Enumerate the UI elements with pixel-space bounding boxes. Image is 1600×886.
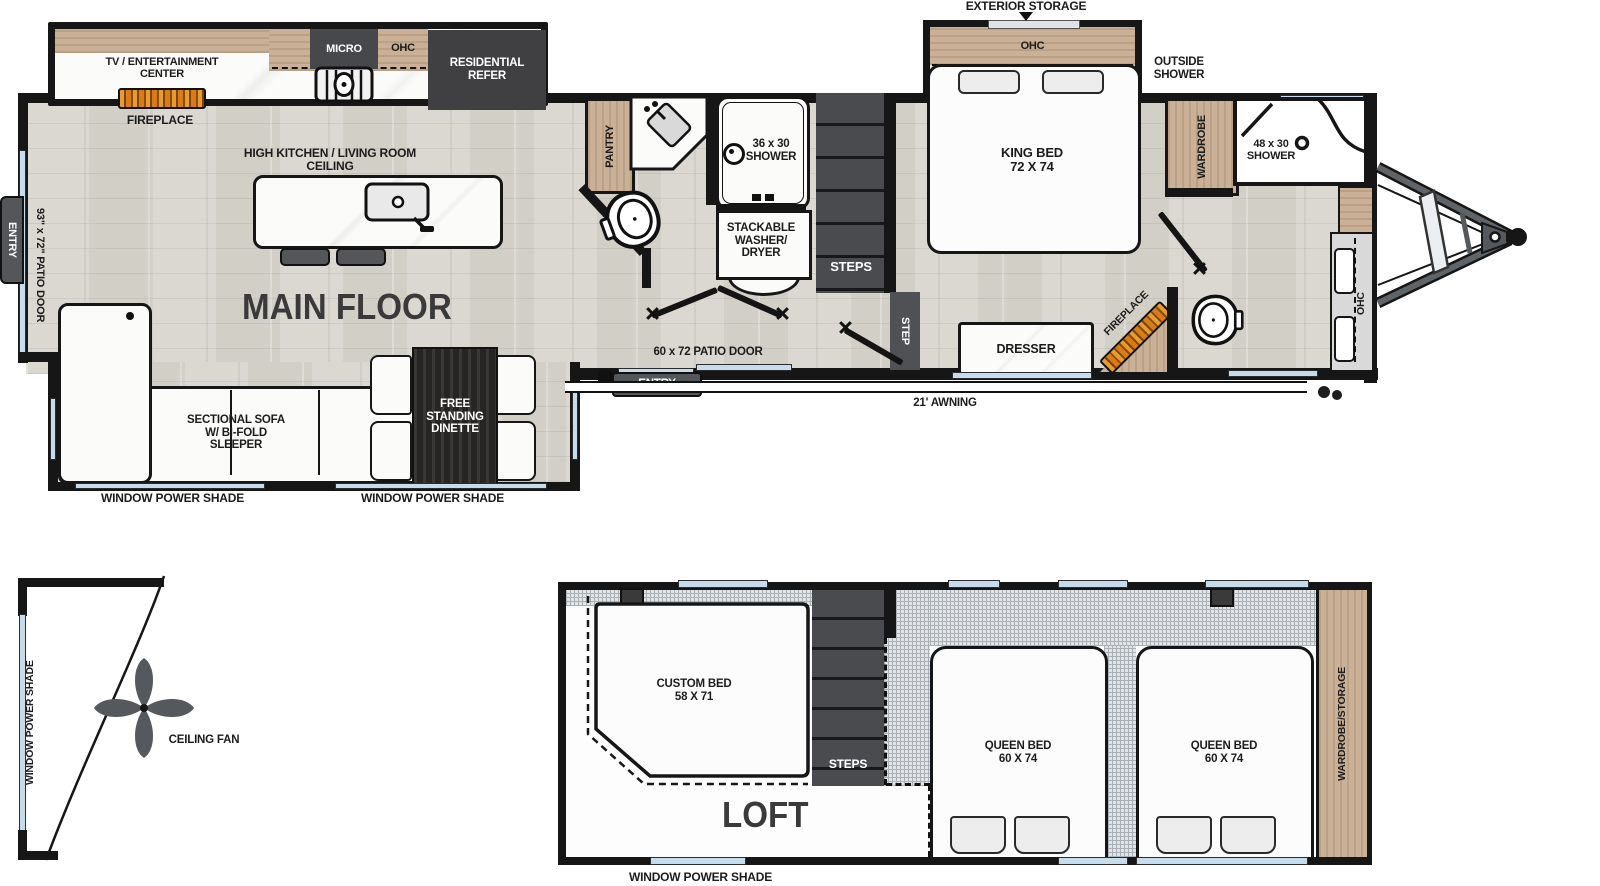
shade-sofa-label: WINDOW POWER SHADE <box>95 492 250 506</box>
tv-upper-cabinet <box>55 29 269 53</box>
loft-rail-dash-2 <box>886 783 930 786</box>
exterior-storage-door <box>988 20 1080 29</box>
exterior-storage-arrow-icon <box>1019 12 1033 21</box>
sofa-window <box>75 483 265 489</box>
shower-36-handle-1 <box>752 194 761 201</box>
awning-rail <box>565 381 1307 393</box>
dresser: DRESSER <box>958 322 1094 378</box>
outside-shower-label: OUTSIDE SHOWER <box>1146 56 1212 84</box>
dinette-chair-1 <box>370 355 412 415</box>
fan-detail-shade-label: WINDOW POWER SHADE <box>25 652 41 794</box>
shower-48-label: 48 x 30 SHOWER <box>1242 138 1300 166</box>
shade-dinette-label: WINDOW POWER SHADE <box>355 492 510 506</box>
queen-right-pillow-1 <box>1156 816 1212 854</box>
step-label: STEP <box>899 317 911 345</box>
door-hinge-1 <box>646 307 658 319</box>
main-floor-title: MAIN FLOOR <box>242 286 452 328</box>
bedroom-bottom-window <box>952 372 1092 379</box>
fan-detail-left-wall-top <box>18 578 27 616</box>
landing-gear-2 <box>1332 390 1342 400</box>
wall-under-wardrobe <box>1165 188 1233 197</box>
bath-wall-stub <box>642 248 651 288</box>
pantry-label: PANTRY <box>604 125 616 168</box>
bar-stool-2 <box>336 248 386 266</box>
bar-stool-1 <box>280 248 330 266</box>
loft-bottom-window-1 <box>650 857 746 865</box>
toilet-front-icon <box>1186 292 1246 348</box>
tv-entertainment-label: TV / ENTERTAINMENT CENTER <box>60 56 264 84</box>
loft-wardrobe: WARDROBE/STORAGE <box>1316 590 1367 857</box>
dinette-chair-4 <box>494 421 536 481</box>
refer-label: RESIDENTIAL REFER <box>450 57 524 82</box>
loft-vent-2 <box>1210 588 1234 607</box>
floorplan-canvas: ENTRY 93" x 72" PATIO DOOR TV / ENTERTAI… <box>0 0 1600 886</box>
micro-label: MICRO <box>326 43 362 55</box>
loft-wall-steps <box>884 590 896 638</box>
shower-36-handle-2 <box>765 194 774 201</box>
queen-bed-right-label: QUEEN BED 60 X 74 <box>1178 740 1270 772</box>
sofa-slide-left-window <box>50 398 56 460</box>
queen-bed-left-label: QUEEN BED 60 X 74 <box>972 740 1064 772</box>
fireplace-rear-icon <box>118 88 206 109</box>
wall-bath-front <box>1167 287 1178 372</box>
rear-entry-label: ENTRY <box>6 222 18 258</box>
pantry: PANTRY <box>585 98 635 194</box>
queen-left-pillow-2 <box>1014 816 1070 854</box>
wall-steps-right <box>884 93 896 293</box>
loft-shade-label: WINDOW POWER SHADE <box>628 871 773 885</box>
door-hinge-3 <box>839 321 851 333</box>
bedroom-ohc: OHC <box>930 27 1135 65</box>
loft-top-window-1 <box>678 580 768 588</box>
queen-left-pillow-1 <box>950 816 1006 854</box>
dinette-chair-2 <box>370 421 412 481</box>
patio-door-mid-glass-2 <box>696 364 792 371</box>
awning-label: 21' AWNING <box>900 397 990 411</box>
bath-sink-icon <box>629 95 711 171</box>
queen-right-pillow-2 <box>1220 816 1276 854</box>
loft-top-window-2 <box>948 580 1000 588</box>
shower-36-label: 36 x 30 SHOWER <box>740 138 802 166</box>
rear-entry-door: ENTRY <box>0 196 24 284</box>
loft-hatch-front <box>930 590 1320 646</box>
kitchen-ohc-label: OHC <box>378 42 428 56</box>
loft-top-window-3 <box>1058 580 1128 588</box>
bedroom-wardrobe: WARDROBE <box>1165 98 1239 196</box>
dinette-window <box>335 483 547 489</box>
steps-main-label: STEPS <box>820 260 882 278</box>
loft-bottom-window-3 <box>1136 857 1308 865</box>
sofa-button-1 <box>126 312 134 320</box>
king-pillow-2 <box>1042 70 1104 94</box>
microwave: MICRO <box>310 29 378 69</box>
door-hinge-2 <box>776 307 788 319</box>
ceiling-label: HIGH KITCHEN / LIVING ROOM CEILING <box>226 147 434 161</box>
fireplace-rear-label: FIREPLACE <box>112 114 208 126</box>
ceiling-fan-icon <box>86 650 202 766</box>
sofa-chaise <box>58 303 152 484</box>
landing-gear-1 <box>1318 386 1330 398</box>
dinette-table: FREE STANDING DINETTE <box>412 347 498 487</box>
ceiling-fan-label: CEILING FAN <box>164 734 244 747</box>
bedroom-wardrobe-label: WARDROBE <box>1196 115 1208 179</box>
shower-head-dot <box>729 149 734 154</box>
sofa-label: SECTIONAL SOFA W/ BI-FOLD SLEEPER <box>152 414 320 458</box>
island-sink-icon <box>362 180 446 238</box>
vanity-sink-2 <box>1334 316 1355 362</box>
exterior-storage-label: EXTERIOR STORAGE <box>958 0 1094 12</box>
loft-hatch-between-beds <box>1104 646 1136 857</box>
residential-refer: RESIDENTIAL REFER <box>428 30 546 110</box>
rear-patio-door-label: 93" x 72" PATIO DOOR <box>30 158 46 372</box>
hitch-frame-icon <box>1366 85 1600 395</box>
patio-door-mid-label: 60 x 72 PATIO DOOR <box>638 346 778 360</box>
king-bed-label: KING BED 72 X 74 <box>978 146 1086 182</box>
steps-loft-label: STEPS <box>818 758 878 774</box>
loft-bottom-window-2 <box>1058 857 1128 865</box>
dinette-label: FREE STANDING DINETTE <box>426 398 484 436</box>
sofa-slide-right-window <box>572 388 578 460</box>
loft-rail-dash-1 <box>884 638 887 785</box>
bedroom-ohc-label: OHC <box>1021 40 1045 52</box>
stove-icon <box>313 66 375 104</box>
door-hinge-4 <box>1193 262 1205 274</box>
custom-bed-label: CUSTOM BED 58 X 71 <box>640 678 748 708</box>
loft-title: LOFT <box>722 794 808 836</box>
dinette-chair-3 <box>494 355 536 415</box>
vanity-sink-1 <box>1334 248 1355 294</box>
washer-label: STACKABLE WASHER/ DRYER <box>720 222 802 266</box>
loft-top-window-4 <box>1205 580 1309 588</box>
frontbath-bottom-window <box>1228 370 1318 377</box>
loft-wardrobe-label: WARDROBE/STORAGE <box>1337 667 1349 781</box>
dresser-label: DRESSER <box>996 343 1055 357</box>
king-pillow-1 <box>958 70 1020 94</box>
